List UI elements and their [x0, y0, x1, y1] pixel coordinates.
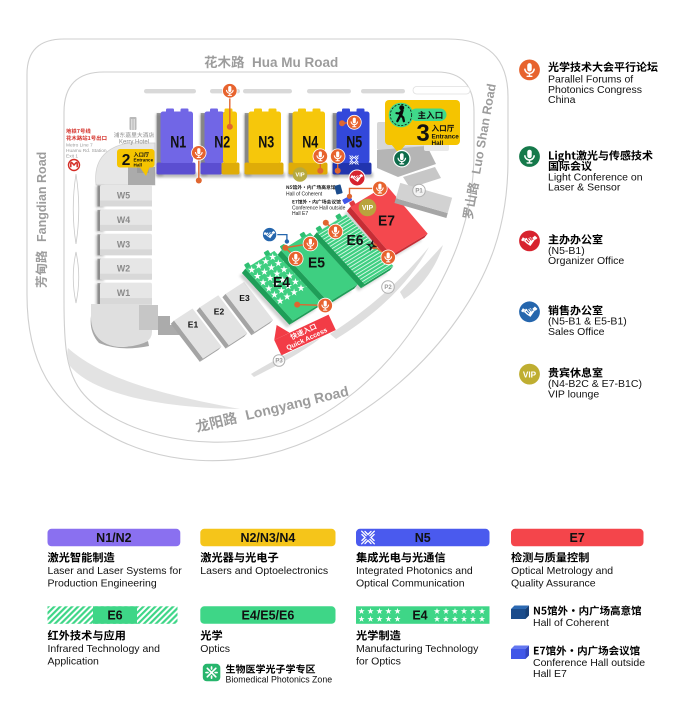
svg-text:Metro Line 7: Metro Line 7 [66, 143, 93, 149]
svg-text:Production Engineering: Production Engineering [48, 577, 157, 589]
svg-text:Hall: Hall [432, 140, 444, 147]
svg-text:P3: P3 [275, 359, 283, 365]
svg-text:W5: W5 [117, 191, 130, 201]
svg-text:Hall E7: Hall E7 [533, 668, 567, 680]
svg-text:Kerry Hotel: Kerry Hotel [119, 140, 149, 146]
svg-text:VIP lounge: VIP lounge [548, 388, 599, 400]
svg-text:W3: W3 [117, 239, 130, 249]
svg-text:Lasers and Optoelectronics: Lasers and Optoelectronics [200, 565, 328, 577]
svg-text:W2: W2 [117, 264, 130, 274]
svg-text:E7: E7 [570, 531, 585, 545]
svg-text:W1: W1 [117, 288, 130, 298]
svg-text:E6: E6 [107, 608, 122, 622]
svg-text:Optics: Optics [200, 643, 230, 655]
svg-text:E5: E5 [308, 256, 325, 272]
svg-text:Hua Mu Road: Hua Mu Road [252, 55, 338, 70]
svg-text:Huamu Rd. Station: Huamu Rd. Station [66, 148, 107, 154]
svg-text:Organizer Office: Organizer Office [548, 255, 624, 267]
svg-text:N2: N2 [214, 133, 230, 152]
svg-text:Quality Assurance: Quality Assurance [511, 577, 596, 589]
svg-text:3: 3 [416, 120, 429, 147]
svg-text:E2: E2 [214, 307, 225, 317]
svg-text:Optical Metrology and: Optical Metrology and [511, 565, 613, 577]
svg-text:Hall of Coherent: Hall of Coherent [286, 192, 323, 198]
svg-text:for Optics: for Optics [356, 655, 401, 667]
svg-text:Exit 1: Exit 1 [66, 154, 78, 160]
svg-text:P2: P2 [384, 285, 392, 291]
svg-text:N5: N5 [415, 531, 431, 545]
svg-text:2: 2 [122, 152, 131, 169]
svg-text:Biomedical Photonics Zone: Biomedical Photonics Zone [226, 675, 333, 685]
svg-text:China: China [548, 94, 576, 106]
svg-text:N1: N1 [170, 133, 186, 152]
svg-text:Fangdian Road: Fangdian Road [35, 152, 49, 242]
svg-text:P1: P1 [415, 189, 423, 195]
svg-text:N1/N2: N1/N2 [96, 531, 131, 545]
svg-text:Hall of Coherent: Hall of Coherent [533, 617, 609, 629]
svg-text:Sales Office: Sales Office [548, 326, 605, 338]
svg-text:E3: E3 [239, 293, 250, 303]
svg-text:VIP: VIP [523, 370, 537, 379]
svg-text:Laser & Sensor: Laser & Sensor [548, 182, 621, 194]
svg-text:Hall: Hall [134, 162, 142, 167]
svg-text:E4: E4 [273, 275, 290, 291]
svg-text:N5: N5 [346, 133, 362, 152]
svg-text:Manufacturing Technology: Manufacturing Technology [356, 643, 479, 655]
svg-text:Infrared Technology and: Infrared Technology and [48, 643, 161, 655]
svg-text:VIP: VIP [362, 205, 374, 212]
svg-text:N3: N3 [258, 133, 274, 152]
svg-text:N4: N4 [302, 133, 318, 152]
svg-text:Application: Application [48, 655, 100, 667]
svg-text:E6: E6 [347, 233, 364, 249]
svg-text:Conference Hall outside: Conference Hall outside [533, 657, 645, 669]
svg-text:Hall E7: Hall E7 [292, 211, 308, 217]
svg-text:E4: E4 [412, 608, 427, 622]
svg-text:E7: E7 [378, 214, 395, 230]
svg-text:Laser and Laser Systems for: Laser and Laser Systems for [48, 565, 183, 577]
svg-text:Longyang Road: Longyang Road [244, 383, 351, 423]
svg-text:Optical Communication: Optical Communication [356, 577, 465, 589]
svg-text:VIP: VIP [295, 173, 304, 179]
svg-text:E1: E1 [188, 320, 199, 330]
svg-text:W4: W4 [117, 215, 130, 225]
svg-text:N2/N3/N4: N2/N3/N4 [240, 531, 295, 545]
svg-text:Integrated Photonics and: Integrated Photonics and [356, 565, 473, 577]
svg-text:E4/E5/E6: E4/E5/E6 [241, 608, 294, 622]
